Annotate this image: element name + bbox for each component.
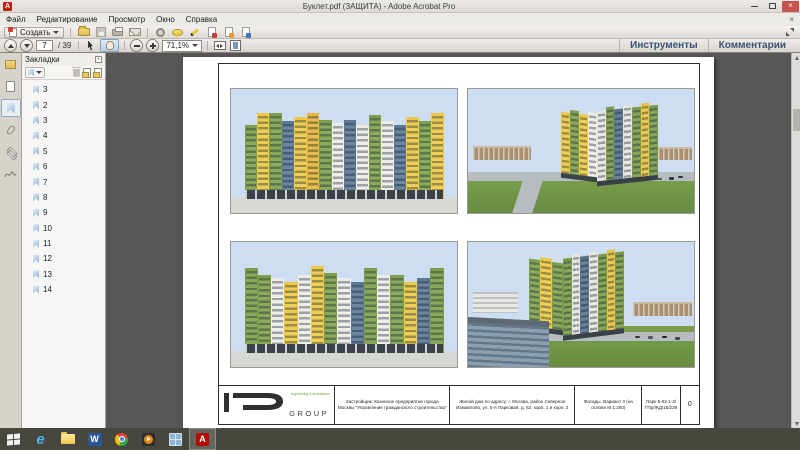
zoom-out-button[interactable]	[130, 39, 143, 52]
next-page-button[interactable]	[20, 39, 33, 52]
create-form-button[interactable]	[222, 27, 235, 38]
previous-page-button[interactable]	[4, 39, 17, 52]
gear-icon	[156, 28, 165, 37]
bookmark-label: 10	[43, 224, 52, 233]
tiles-app-button[interactable]	[162, 428, 189, 450]
bookmark-label: 13	[43, 270, 52, 279]
separator	[124, 41, 125, 50]
bookmarks-list: 3234567891011121314	[22, 80, 105, 428]
word-button[interactable]: W	[81, 428, 108, 450]
revision-cell: 0	[680, 386, 699, 424]
bookmarks-panel: Закладки ▪ 3234567891011121314	[22, 53, 106, 428]
minus-icon	[134, 45, 140, 47]
windows-logo-icon	[7, 433, 20, 445]
bookmark-icon	[33, 286, 39, 294]
bookmark-item[interactable]: 6	[22, 159, 105, 174]
bookmark-icon	[33, 163, 39, 171]
bookmark-item[interactable]: 3	[22, 82, 105, 97]
logo-tagline: engineering & architecture	[291, 392, 331, 396]
window-title: Буклет.pdf (ЗАЩИТА) - Adobe Acrobat Pro	[12, 2, 746, 11]
thumbnails-icon	[5, 60, 16, 69]
email-icon	[129, 28, 141, 36]
chrome-button[interactable]	[108, 428, 135, 450]
internet-explorer-button[interactable]: e	[27, 428, 54, 450]
action-bar: Инструменты Комментарии	[619, 39, 796, 52]
comment-bubble-icon	[172, 29, 183, 36]
bookmark-item[interactable]: 11	[22, 236, 105, 251]
bookmark-label: 3	[43, 85, 47, 94]
highlighter-icon	[190, 28, 199, 36]
close-button[interactable]: ×	[782, 1, 799, 12]
bookmarks-panel-header: Закладки ▪	[22, 53, 105, 66]
separator	[70, 28, 71, 37]
bookmark-item[interactable]: 7	[22, 174, 105, 189]
tools-button[interactable]: Инструменты	[619, 39, 708, 52]
paperclip-icon	[5, 124, 16, 136]
attachments-panel-button[interactable]	[1, 121, 21, 139]
drawing-frame: engineering & architecture GROUP Застрой…	[218, 63, 700, 425]
delete-bookmark-icon[interactable]	[73, 69, 80, 77]
folder-icon	[61, 434, 75, 444]
bookmark-icon	[33, 255, 39, 263]
zoom-level-select[interactable]: 71,1%	[162, 40, 202, 52]
bookmark-icon	[33, 178, 39, 186]
chrome-icon	[115, 433, 128, 446]
file-explorer-button[interactable]	[54, 428, 81, 450]
comment-button[interactable]	[171, 27, 184, 38]
navigation-rail	[0, 53, 22, 428]
render-front-elevation	[230, 88, 458, 214]
menu-view[interactable]: Просмотр	[109, 15, 146, 24]
arrow-up-icon	[8, 44, 14, 48]
fit-width-button[interactable]	[213, 40, 226, 51]
menu-edit[interactable]: Редактирование	[37, 15, 98, 24]
quick-tools-toolbar: Создать	[0, 26, 800, 39]
bookmark-label: 12	[43, 254, 52, 263]
export-pdf-button[interactable]	[205, 27, 218, 38]
select-cursor-icon	[87, 41, 95, 51]
bookmark-item[interactable]: 8	[22, 190, 105, 205]
word-icon: W	[88, 433, 102, 446]
bookmark-icon	[33, 270, 39, 278]
bookmark-item[interactable]: 12	[22, 251, 105, 266]
acrobat-app-icon: A	[3, 2, 12, 11]
email-button[interactable]	[128, 27, 141, 38]
bookmark-icon	[33, 86, 39, 94]
start-button[interactable]	[0, 428, 27, 450]
bookmark-icon	[33, 132, 39, 140]
scroll-down-icon[interactable]	[792, 419, 800, 428]
sign-doc-icon	[242, 27, 250, 37]
bookmark-label: 11	[43, 239, 51, 248]
logo-cell: engineering & architecture GROUP	[219, 386, 334, 424]
options-caret-icon	[36, 71, 42, 74]
create-label: Создать	[20, 28, 50, 37]
bookmark-item[interactable]: 9	[22, 205, 105, 220]
logo-group-text: GROUP	[289, 409, 329, 419]
document-code-cell: Парк 5-62-1-2/ ГПр/ЖД/15/229	[641, 386, 679, 424]
developer-cell: Застройщик: Казенное предприятие города …	[334, 386, 449, 424]
bookmarks-icon	[7, 103, 15, 114]
address-cell: Жилой дом по адресу: г. Москва, район Се…	[449, 386, 574, 424]
render-perspective-courtyard	[467, 241, 695, 368]
bookmark-item[interactable]: 14	[22, 282, 105, 297]
bookmark-item[interactable]: 10	[22, 221, 105, 236]
print-icon	[112, 29, 123, 36]
open-button[interactable]	[77, 27, 90, 38]
reading-mode-button[interactable]	[783, 27, 796, 38]
bookmark-item[interactable]: 5	[22, 144, 105, 159]
scrollbar-thumb[interactable]	[793, 109, 800, 131]
zoom-in-button[interactable]	[146, 39, 159, 52]
render-rear-elevation	[230, 241, 458, 368]
bookmark-icon	[33, 116, 39, 124]
bookmark-actions-icon[interactable]	[94, 68, 102, 78]
separator	[78, 41, 79, 50]
bookmark-label: 14	[43, 285, 52, 294]
bookmarks-panel-button[interactable]	[1, 99, 21, 117]
pages-icon	[6, 81, 15, 92]
open-folder-icon	[78, 28, 90, 36]
bookmark-label: 6	[43, 162, 47, 171]
new-bookmark-icon[interactable]	[83, 68, 91, 78]
bookmark-options-button[interactable]	[25, 67, 45, 78]
thumbnails-panel-button[interactable]	[1, 55, 21, 73]
export-doc-icon	[208, 27, 216, 37]
tiles-app-icon	[169, 433, 182, 446]
windows-taskbar: e W A	[0, 428, 800, 450]
bookmark-item[interactable]: 4	[22, 128, 105, 143]
separator	[147, 28, 148, 37]
zoom-caret-icon	[192, 44, 198, 47]
media-player-icon	[142, 433, 155, 446]
maximize-button[interactable]	[764, 1, 781, 12]
bookmarks-panel-title: Закладки	[25, 55, 60, 64]
page-navigation-toolbar: / 39 71,1% Инструменты Комментарии	[0, 39, 800, 53]
form-doc-icon	[225, 27, 233, 37]
zoom-level-value: 71,1%	[166, 41, 189, 50]
acrobat-window: A Буклет.pdf (ЗАЩИТА) - Adobe Acrobat Pr…	[0, 0, 800, 428]
scroll-up-icon[interactable]	[792, 53, 800, 62]
menu-file[interactable]: Файл	[6, 15, 26, 24]
layers-icon	[5, 147, 17, 157]
bookmark-item[interactable]: 2	[22, 97, 105, 112]
create-pdf-icon	[9, 28, 17, 37]
bookmark-icon	[33, 101, 39, 109]
ie-icon: e	[36, 432, 44, 447]
menu-help[interactable]: Справка	[186, 15, 217, 24]
comments-button[interactable]: Комментарии	[708, 39, 796, 52]
media-player-button[interactable]	[135, 428, 162, 450]
title-block: engineering & architecture GROUP Застрой…	[219, 385, 699, 424]
render-perspective-street	[467, 88, 695, 214]
page-number-input[interactable]	[36, 40, 53, 51]
page-count-label: / 39	[58, 41, 71, 50]
separator	[207, 41, 208, 50]
minimize-button[interactable]	[746, 1, 763, 12]
bookmark-label: 5	[43, 147, 47, 156]
menu-window[interactable]: Окно	[156, 15, 175, 24]
bookmark-item[interactable]: 13	[22, 267, 105, 282]
bookmark-label: 8	[43, 193, 47, 202]
hand-icon	[106, 41, 114, 50]
bookmark-icon	[33, 240, 39, 248]
share-button[interactable]	[154, 27, 167, 38]
reading-mode-icon	[786, 28, 794, 36]
fit-width-icon	[214, 41, 226, 50]
hand-tool-button[interactable]	[100, 39, 119, 52]
bookmark-label: 3	[43, 116, 47, 125]
bookmarks-toolbar	[22, 66, 105, 80]
acrobat-icon: A	[196, 433, 209, 446]
highlight-button[interactable]	[188, 27, 201, 38]
pdf-page: engineering & architecture GROUP Застрой…	[183, 57, 714, 428]
create-button[interactable]: Создать	[4, 27, 64, 38]
pages-panel-button[interactable]	[1, 77, 21, 95]
signature-icon	[4, 170, 17, 179]
foreground-building	[468, 317, 549, 368]
menu-bar: Файл Редактирование Просмотр Окно Справк…	[0, 13, 800, 26]
plus-icon	[150, 43, 156, 49]
fit-page-button[interactable]	[229, 40, 242, 51]
create-caret-icon	[53, 31, 59, 34]
layers-panel-button[interactable]	[1, 143, 21, 161]
print-button[interactable]	[111, 27, 124, 38]
panel-collapse-icon[interactable]: ▪	[95, 56, 102, 63]
bookmark-item[interactable]: 3	[22, 113, 105, 128]
bookmark-icon	[33, 209, 39, 217]
signatures-panel-button[interactable]	[1, 165, 21, 183]
bookmark-label: 7	[43, 178, 47, 187]
bookmark-label: 2	[43, 101, 47, 110]
bookmark-icon	[33, 224, 39, 232]
bookmark-label: 4	[43, 131, 47, 140]
sheet-title-cell: Фасады. Вариант 3 (на основе М 1:200)	[574, 386, 641, 424]
close-document-icon[interactable]: ×	[789, 15, 794, 24]
ip-group-logo	[223, 390, 285, 414]
save-button[interactable]	[94, 27, 107, 38]
bookmark-icon	[33, 147, 39, 155]
vertical-scrollbar[interactable]	[791, 53, 800, 428]
save-icon	[96, 27, 106, 37]
bookmark-icon	[33, 193, 39, 201]
bookmark-small-icon	[28, 69, 34, 77]
document-canvas[interactable]: engineering & architecture GROUP Застрой…	[106, 53, 800, 428]
title-bar: A Буклет.pdf (ЗАЩИТА) - Adobe Acrobat Pr…	[0, 0, 800, 13]
fit-page-icon	[230, 40, 241, 51]
select-tool-button[interactable]	[84, 40, 97, 51]
sign-button[interactable]	[239, 27, 252, 38]
acrobat-taskbar-button[interactable]: A	[189, 428, 216, 450]
bookmark-label: 9	[43, 208, 47, 217]
arrow-down-icon	[24, 44, 30, 48]
